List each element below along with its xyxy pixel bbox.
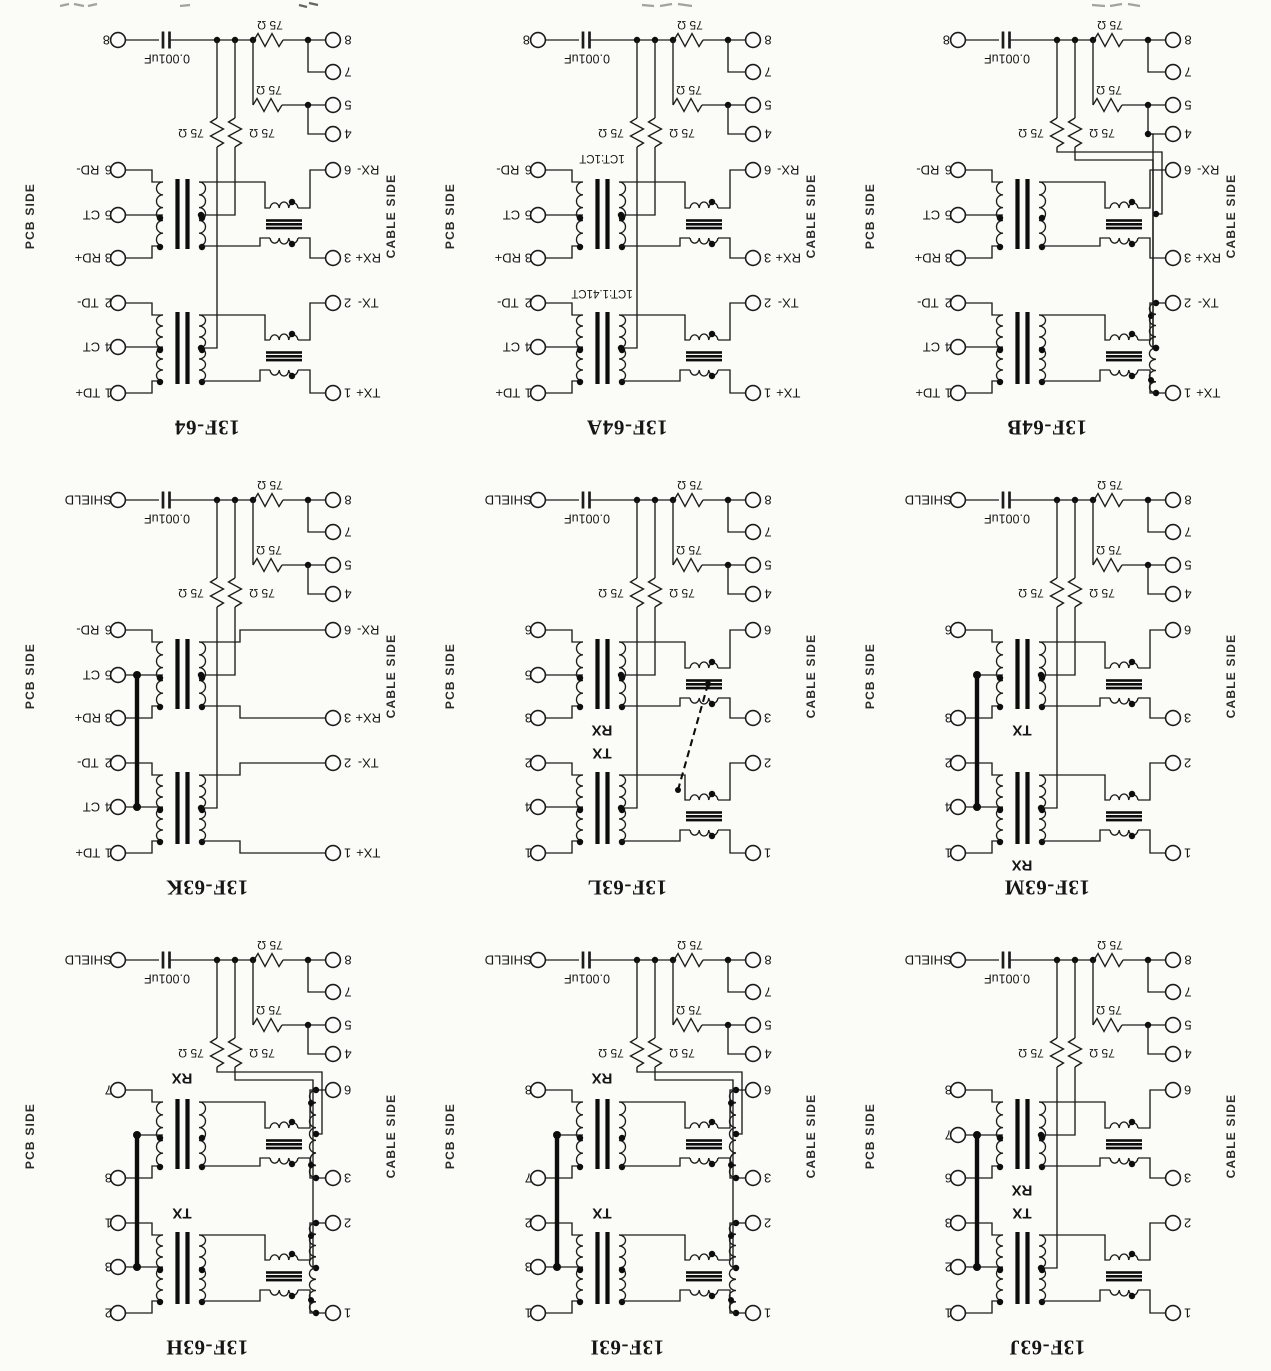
pcb-pin-number: 2 [945,1259,952,1274]
junction-dot [618,345,624,351]
cable-pin-number: 2 [1184,295,1191,310]
wire [199,1290,270,1301]
cable-pin-number: 1 [344,385,351,400]
cable-pin-number: 1 [764,385,771,400]
pcb-pin-number: 7 [525,1170,532,1185]
pcb-pad [531,33,546,48]
schematic-13F-63M: PCB SIDECABLE SIDESHIELD0.001uF75 Ω8775 … [840,470,1250,911]
cable-pin-number: 1 [1184,1305,1191,1320]
wire [298,170,326,208]
winding-label: RX [172,1070,193,1087]
cap-value: 0.001uF [984,512,1030,526]
choke-core [686,811,722,814]
junction-dot [709,1119,715,1125]
center-tap-link [973,1131,981,1271]
pcb-pin-number: 1 [105,1215,112,1230]
aux-pin-number: 4 [764,126,771,141]
winding-label: TX [592,1205,611,1222]
cable-pad [746,1047,761,1062]
cable-side-label: CABLE SIDE [384,634,398,719]
pcb-pin-number: 6 [525,162,532,177]
transformer-core [175,179,179,249]
cable-pad [1166,756,1181,771]
pcb-pad [111,33,126,48]
pcb-pin-number: 2 [945,295,952,310]
wire [546,1090,584,1102]
junction-dot [289,1119,295,1125]
resistor-body [1069,1038,1082,1067]
cable-pin-number: 6 [764,162,771,177]
resistor-value: 75 Ω [249,126,275,140]
wire [1039,182,1110,208]
wire [199,315,270,340]
wire [199,706,326,718]
transformer-core [1015,1232,1019,1304]
pcb-pin-name: TD- [77,755,99,770]
cable-pin-name: RX- [357,622,379,637]
pcb-pin-number: 6 [105,162,112,177]
cable-pad [746,711,761,726]
junction-dot [157,1135,163,1141]
resistor-value: 75 Ω [669,586,695,600]
wire [718,630,746,668]
junction-dot [289,1161,295,1167]
cable-pad [1166,493,1181,508]
resistor-value: 75 Ω [249,1046,275,1060]
junction-dot [619,1267,625,1273]
resistor-value: 75 Ω [178,126,204,140]
resistor-body [211,118,224,147]
wire [718,303,746,340]
junction-dot [619,379,625,385]
cable-pad [326,1216,341,1231]
schematic-title: 13F-63J [1009,1336,1086,1360]
pcb-pin-number: 2 [525,295,532,310]
junction-dot [1129,791,1135,797]
cable-pad [746,1083,761,1098]
wire [126,630,164,642]
wire [728,500,746,532]
cable-pad [326,65,341,80]
junction-dot [619,839,625,845]
pcb-transformer [546,630,626,718]
wire [1138,763,1166,800]
junction-dot [1038,1132,1044,1138]
cable-pin-name: RX- [357,162,379,177]
winding-label: RX [1012,857,1033,874]
common-mode-choke [266,331,302,379]
cable-pin-number: 6 [344,162,351,177]
pcb-side-label: PCB SIDE [443,1103,457,1169]
wire [728,565,746,594]
junction-dot [577,807,583,813]
wire [199,1158,270,1166]
pcb-side-label: PCB SIDE [863,1103,877,1169]
shield-pad [951,953,966,968]
junction-dot [1129,1161,1135,1167]
termination-network: 80.001uF75 Ω8775 Ω5475 Ω75 Ω [523,18,772,147]
choke-core [266,355,302,358]
junction-dot [1129,659,1135,665]
pcb-pin-number: 3 [525,710,532,725]
cable-pin-name: TX- [358,295,379,310]
schematic-13F-63L: PCB SIDECABLE SIDESHIELD0.001uF75 Ω8775 … [420,470,830,911]
pcb-pin-number: 3 [525,1259,532,1274]
cable-pin-number: 6 [344,622,351,637]
cable-pin-number: 6 [344,1082,351,1097]
schematic-sheet: PCB SIDECABLE SIDE80.001uF75 Ω8775 Ω5475… [0,0,1271,1371]
junction-dot [997,1135,1003,1141]
choke-core [1106,683,1142,686]
wire [199,370,270,381]
wire [619,370,690,381]
cable-pin-number: 6 [1184,622,1191,637]
common-mode-choke [1106,1119,1142,1167]
cable-pad [746,953,761,968]
termination-network: SHIELD0.001uF75 Ω8775 Ω5475 Ω75 Ω [485,938,772,1067]
cable-pin-number: 6 [1184,162,1191,177]
resistor-body [1069,118,1082,147]
cable-pad [746,558,761,573]
junction-dot [1129,199,1135,205]
pcb-pin-number: 8 [945,1082,952,1097]
junction-dot [1129,241,1135,247]
common-mode-choke [686,1119,722,1167]
cable-pad [746,33,761,48]
transformer-core [175,1099,179,1169]
cable-pad [746,98,761,113]
pcb-pin-number: 2 [525,755,532,770]
cable-pad [746,296,761,311]
wire [718,1158,746,1178]
cable-pad [326,558,341,573]
cable-pin-name: TX+ [1196,385,1220,400]
aux-pin-number: 8 [1184,952,1191,967]
pcb-pin-number: 4 [525,339,532,354]
junction-dot [577,1135,583,1141]
cable-pad [326,1018,341,1033]
choke-core [686,679,722,682]
aux-pin-number: 8 [344,32,351,47]
transformer-core [185,179,189,249]
pcb-pin-name: RD- [496,162,519,177]
pcb-pin-number: 1 [525,1305,532,1320]
shield-tap-wire [637,1067,742,1134]
resistor-body [631,578,644,607]
choke-core [686,819,722,822]
resistor-body [254,494,283,507]
junction-dot [709,1161,715,1167]
pcb-pin-name: CT [83,667,100,682]
choke-core [1106,687,1142,690]
pcb-pin-name: CT [83,799,100,814]
cable-pin-number: 2 [344,755,351,770]
resistor-body [1094,494,1123,507]
shield-pad [531,493,546,508]
cable-pad [326,493,341,508]
cable-pad [326,33,341,48]
junction-dot [1129,1293,1135,1299]
schematic-13F-64A: PCB SIDECABLE SIDE80.001uF75 Ω8775 Ω5475… [420,10,830,451]
cable-pin-number: 3 [764,250,771,265]
junction-dot [577,704,583,710]
resistor-body [254,34,283,47]
cable-pin-number: 6 [764,1082,771,1097]
pcb-pin-number: 8 [525,1082,532,1097]
junction-dot [997,1299,1003,1305]
junction-dot [198,345,204,351]
resistor-body [1093,99,1122,112]
resistor-value: 75 Ω [676,1003,702,1017]
resistor-body [673,1019,702,1032]
common-mode-choke [1106,1251,1142,1299]
choke-core [1106,1275,1142,1278]
cable-pin-number: 2 [764,1215,771,1230]
cable-pin-number: 2 [764,295,771,310]
wire [619,830,690,841]
junction-dot [198,805,204,811]
junction-dot [1038,1265,1044,1271]
wire [718,170,746,208]
schematic-13F-63I: PCB SIDECABLE SIDESHIELD0.001uF75 Ω8775 … [420,930,830,1371]
shield-tap-wire [217,1067,322,1134]
aux-pin-number: 7 [1184,984,1191,999]
choke-core [1106,819,1142,822]
pcb-pin-number: 2 [105,295,112,310]
winding-coil [199,1102,206,1166]
transformer-core [595,1232,599,1304]
winding-coil [157,642,164,706]
cable-pin-number: 3 [1184,710,1191,725]
junction-dot [618,805,624,811]
wire [1138,1223,1166,1260]
junction-dot [289,373,295,379]
cable-pad [746,525,761,540]
corner-pin-label: 8 [943,32,950,47]
winding-label: TX [592,745,611,762]
cable-pin-number: 1 [1184,845,1191,860]
wire [1138,238,1166,258]
cable-pin-name: TX- [1198,295,1219,310]
junction-dot [577,1267,583,1273]
termination-network: SHIELD0.001uF75 Ω8775 Ω5475 Ω75 Ω [65,938,352,1067]
winding-coil [577,642,584,706]
resistor-value: 75 Ω [178,586,204,600]
resistor-value: 75 Ω [1096,83,1122,97]
cable-pin-number: 2 [344,295,351,310]
junction-dot [997,807,1003,813]
cable-pin-name: TX- [358,755,379,770]
junction-dot [577,379,583,385]
junction-dot [133,803,141,811]
cable-pad [326,251,341,266]
aux-pin-number: 4 [344,586,351,601]
winding-coil [997,1102,1004,1166]
junction-dot [618,672,624,678]
cable-pin-number: 3 [344,250,351,265]
junction-dot [198,672,204,678]
cable-pad [326,985,341,1000]
junction-dot [973,671,981,679]
winding-label: 1CT:1CT [579,152,624,164]
wire [1039,1158,1110,1166]
pcb-pin-number: 1 [105,845,112,860]
cap-value: 0.001uF [144,972,190,986]
wire [1039,1235,1110,1260]
schematic-13F-63K: PCB SIDECABLE SIDESHIELD0.001uF75 Ω8775 … [0,470,410,911]
wire [728,960,746,992]
resistor-body [631,118,644,147]
pcb-pin-name: TD+ [495,385,520,400]
resistor-body [1093,559,1122,572]
transformer-core [175,772,179,844]
pcb-pin-number: 4 [945,799,952,814]
junction-dot [133,671,141,679]
winding-coil [997,182,1004,246]
junction-dot [1039,215,1045,221]
cable-pin-name: TX+ [776,385,800,400]
choke-core [266,1147,302,1150]
junction-dot [997,704,1003,710]
wire [1039,315,1110,340]
cable-pin-number: 3 [344,710,351,725]
junction-dot [157,839,163,845]
wire [298,370,326,393]
resistor-value: 75 Ω [598,586,624,600]
cable-pad [1166,1306,1181,1321]
wire [1148,1025,1166,1054]
pcb-transformer [546,303,626,393]
cable-pad [746,127,761,142]
wire [619,1235,690,1260]
pcb-side-label: PCB SIDE [863,643,877,709]
resistor-value: 75 Ω [1018,126,1044,140]
wire [1148,960,1166,992]
junction-dot [308,1162,314,1168]
choke-core [686,219,722,222]
corner-pin-label: SHIELD [905,952,952,967]
wire [728,1025,746,1054]
resistor-value: 75 Ω [178,1046,204,1060]
junction-dot [199,839,205,845]
wire [298,238,326,258]
wire [1138,1090,1166,1128]
cable-pad [746,386,761,401]
resistor-body [1051,1038,1064,1067]
aux-pin-number: 7 [344,524,351,539]
resistor-body [1069,578,1082,607]
junction-dot [313,1131,319,1137]
choke-core [266,1279,302,1282]
cable-pad [746,756,761,771]
cable-pin-number: 3 [344,1170,351,1185]
choke-core [686,1139,722,1142]
transformer-core [1025,1099,1029,1169]
cable-side-label: CABLE SIDE [804,1094,818,1179]
pcb-pin-name: CT [923,339,940,354]
corner-pin-label: 8 [103,32,110,47]
pcb-pin-number: 6 [945,1170,952,1185]
pcb-pin-number: 1 [105,385,112,400]
aux-pin-number: 5 [344,1017,351,1032]
pcb-pin-name: RD+ [75,250,101,265]
cable-pad [1166,65,1181,80]
junction-dot [619,1135,625,1141]
junction-dot [1153,211,1159,217]
aux-pin-number: 7 [1184,524,1191,539]
junction-dot [553,1263,561,1271]
cable-pin-number: 2 [764,755,771,770]
choke-core [1106,223,1142,226]
aux-pin-number: 4 [764,586,771,601]
junction-dot [997,244,1003,250]
corner-pin-label: SHIELD [485,952,532,967]
wire [546,1223,584,1235]
wire [1138,830,1166,853]
choke-core [1106,351,1142,354]
cap-value: 0.001uF [984,972,1030,986]
corner-pin-label: SHIELD [485,492,532,507]
cable-side-label: CABLE SIDE [384,174,398,259]
junction-dot [705,681,711,687]
winding-coil [997,642,1004,706]
aux-pin-number: 4 [344,1046,351,1061]
wire [308,565,326,594]
resistor-value: 75 Ω [676,83,702,97]
cable-pin-number: 2 [1184,755,1191,770]
cable-pad [326,163,341,178]
junction-dot [199,1299,205,1305]
aux-pin-number: 7 [344,984,351,999]
junction-dot [157,215,163,221]
choke-core [266,1143,302,1146]
cable-pad [1166,623,1181,638]
cable-pin-number: 2 [1184,1215,1191,1230]
pcb-pin-name: CT [83,207,100,222]
transformer-core [1015,179,1019,249]
wire [619,1102,690,1128]
cable-pad [746,846,761,861]
choke-core [1106,355,1142,358]
resistor-value: 75 Ω [1018,1046,1044,1060]
cap-value: 0.001uF [144,512,190,526]
schematic-13F-64B: PCB SIDECABLE SIDE80.001uF75 Ω8775 Ω5475… [840,10,1250,451]
shield-tap-wire [1043,1067,1075,1135]
shield-tap-wire [1043,607,1075,675]
junction-dot [577,1299,583,1305]
pcb-pin-number: 3 [945,710,952,725]
choke-core [1106,1147,1142,1150]
junction-dot [289,331,295,337]
wire [1138,1290,1166,1313]
cable-pad [326,587,341,602]
wire [546,763,584,775]
transformer-core [1025,179,1029,249]
pcb-pin-number: 1 [525,845,532,860]
wire [728,105,746,134]
junction-dot [157,244,163,250]
resistor-body [673,99,702,112]
termination-network: 80.001uF75 Ω8775 Ω5475 Ω75 Ω [103,18,352,147]
choke-core [1106,1271,1142,1274]
pcb-pin-name: TD- [917,295,939,310]
cable-pad [746,1171,761,1186]
resistor-body [649,118,662,147]
center-tap-link [553,1131,561,1271]
junction-dot [997,215,1003,221]
cable-pin-number: 3 [764,710,771,725]
cable-pad [1166,711,1181,726]
